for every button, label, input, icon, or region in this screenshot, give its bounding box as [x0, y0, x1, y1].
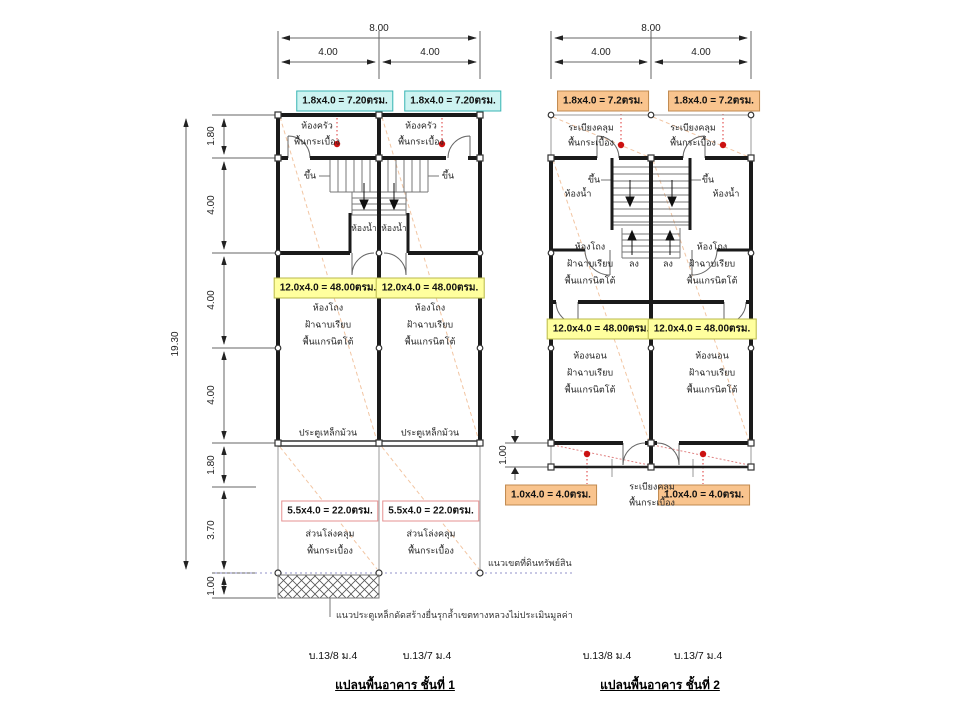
plan2-balcony-dim-arrows [511, 436, 519, 474]
plan2-bedroom-ceiling-left: ฝ้าฉาบเรียบ [567, 369, 613, 378]
plan1-area-label-hall-right: 12.0x4.0 = 48.00ตรม. [376, 278, 485, 299]
plan1-title: แปลนพื้นอาคาร ชั้นที่ 1 [335, 679, 455, 691]
plan2-hall-ceiling-right: ฝ้าฉาบเรียบ [689, 260, 735, 269]
plan1-covered-name-left: ส่วนโล่งคลุม [306, 530, 355, 539]
plan2-title: แปลนพื้นอาคาร ชั้นที่ 2 [600, 679, 720, 691]
plan1-covered-floor-left: พื้นกระเบื้อง [307, 547, 353, 556]
plan2-balcony-floor-top-left: พื้นกระเบื้อง [568, 139, 614, 148]
plan2-walls [551, 158, 751, 467]
plan2-stair-up-right: ขึ้น [702, 176, 714, 185]
plan1-covered-name-right: ส่วนโล่งคลุม [407, 530, 456, 539]
plan2-stair-down-right: ลง [663, 260, 673, 269]
plan2-bedroom-ceiling-right: ฝ้าฉาบเรียบ [689, 369, 735, 378]
plan1-area-label-top-left: 1.8x4.0 = 7.20ตรม. [296, 91, 393, 112]
encroachment-note: แนวประตูเหล็กดัดสร้างยื่นรุกล้ำเขตทางหลว… [336, 608, 573, 622]
plan1-top-dimensions [278, 31, 480, 79]
plan2-hall-ceiling-left: ฝ้าฉาบเรียบ [567, 260, 613, 269]
plan1-hall-ceiling-right: ฝ้าฉาบเรียบ [407, 321, 453, 330]
plan2-dim-left-half: 4.00 [591, 48, 610, 58]
plan1-area-label-covered-right: 5.5x4.0 = 22.0ตรม. [382, 501, 479, 522]
plan1-dim-seg-0: 1.80 [207, 126, 217, 145]
plan2-balcony-name-top-right: ระเบียงคลุม [670, 124, 716, 133]
plan2-balcony-name-bottom: ระเบียงคลุม [629, 483, 675, 492]
encroachment-hatch [278, 575, 379, 598]
plan2-balcony-name-top-left: ระเบียงคลุม [568, 124, 614, 133]
plan1-dim-overall-height: 19.30 [171, 331, 181, 356]
plan1-area-label-covered-left: 5.5x4.0 = 22.0ตรม. [281, 501, 378, 522]
plan1-dim-seg-1: 4.00 [207, 195, 217, 214]
plan1-dim-seg-6: 1.00 [207, 576, 217, 595]
plan2-top-dimensions [551, 31, 751, 79]
plan2-hall-name-left: ห้องโถง [575, 243, 605, 252]
plan2-balcony-floor-top-right: พื้นกระเบื้อง [670, 139, 716, 148]
plan2-hall-name-right: ห้องโถง [697, 243, 727, 252]
plan1-stair-up-right: ขึ้น [442, 172, 454, 181]
plan1-dim-total: 8.00 [369, 24, 388, 34]
floor-plan-canvas: 8.00 4.00 4.00 1.8x4.0 = 7.20ตรม. 1.8x4.… [0, 0, 960, 720]
plan1-dim-seg-5: 3.70 [207, 520, 217, 539]
plan2-bath-right: ห้องน้ำ [713, 190, 740, 199]
plan2-area-label-top-left: 1.8x4.0 = 7.2ตรม. [557, 91, 649, 112]
plan1-bath-left: ห้องน้ำ [351, 224, 376, 233]
plan2-bedroom-name-right: ห้องนอน [695, 352, 728, 361]
plan2-balcony-dimension [505, 430, 548, 480]
plan2-hall-floor-left: พื้นแกรนิตโต้ [565, 277, 616, 286]
plan1-kitchen-name-left: ห้องครัว [301, 122, 333, 131]
plan1-hall-name-right: ห้องโถง [415, 304, 445, 313]
plan1-area-label-top-right: 1.8x4.0 = 7.20ตรม. [404, 91, 501, 112]
plan1-unit-label-right: บ.13/7 ม.4 [403, 651, 452, 662]
plan1-hall-floor-left: พื้นแกรนิตโต้ [303, 338, 354, 347]
plan2-balcony-floor-bottom: พื้นกระเบื้อง [629, 499, 675, 508]
plan1-dim-seg-2: 4.00 [207, 290, 217, 309]
plan1-stair-up-left: ขึ้น [304, 172, 316, 181]
plan2-area-label-top-right: 1.8x4.0 = 7.2ตรม. [668, 91, 760, 112]
plan2-unit-label-right: บ.13/7 ม.4 [674, 651, 723, 662]
plan1-kitchen-floor-left: พื้นกระเบื้อง [294, 138, 340, 147]
boundary-label: แนวเขตที่ดินทรัพย์สิน [488, 556, 572, 570]
plan1-rolling-door-left: ประตูเหล็กม้วน [299, 429, 357, 438]
plan1-covered-floor-right: พื้นกระเบื้อง [408, 547, 454, 556]
plan1-hall-ceiling-left: ฝ้าฉาบเรียบ [305, 321, 351, 330]
plan1-unit-label-left: บ.13/8 ม.4 [309, 651, 358, 662]
plan2-bedroom-name-left: ห้องนอน [573, 352, 606, 361]
plan1-hall-name-left: ห้องโถง [313, 304, 343, 313]
plan1-dim-seg-4: 1.80 [207, 455, 217, 474]
plan2-hall-floor-right: พื้นแกรนิตโต้ [687, 277, 738, 286]
plan1-kitchen-floor-right: พื้นกระเบื้อง [398, 138, 444, 147]
plan2-stair-down-left: ลง [629, 260, 639, 269]
plan2-bedroom-floor-right: พื้นแกรนิตโต้ [687, 386, 738, 395]
plan1-left-dimensions [186, 115, 276, 598]
plan1-dim-seg-3: 4.00 [207, 385, 217, 404]
plan1-kitchen-name-right: ห้องครัว [405, 122, 437, 131]
plan1-rolling-door-right: ประตูเหล็กม้วน [401, 429, 459, 438]
plan2-red-leaders [587, 110, 723, 484]
plan2-dim-right-half: 4.00 [691, 48, 710, 58]
plan2-dim-balcony: 1.00 [499, 445, 509, 464]
plan2-bath-left: ห้องน้ำ [565, 190, 592, 199]
plan1-hall-floor-right: พื้นแกรนิตโต้ [405, 338, 456, 347]
plan1-dim-left-half: 4.00 [318, 48, 337, 58]
plan2-area-label-balcony-left: 1.0x4.0 = 4.0ตรม. [505, 485, 597, 506]
plan2-red-dots [584, 142, 726, 457]
plan2-dim-total: 8.00 [641, 24, 660, 34]
plan2-unit-label-left: บ.13/8 ม.4 [583, 651, 632, 662]
plan1-bath-right: ห้องน้ำ [381, 224, 406, 233]
plan2-bedroom-floor-left: พื้นแกรนิตโต้ [565, 386, 616, 395]
plan2-stair-up-left: ขึ้น [588, 176, 600, 185]
plan2-area-label-hall-right: 12.0x4.0 = 48.00ตรม. [648, 319, 757, 340]
plan2-area-label-hall-left: 12.0x4.0 = 48.00ตรม. [547, 319, 656, 340]
plan1-dim-right-half: 4.00 [420, 48, 439, 58]
plan1-area-label-hall-left: 12.0x4.0 = 48.00ตรม. [274, 278, 383, 299]
